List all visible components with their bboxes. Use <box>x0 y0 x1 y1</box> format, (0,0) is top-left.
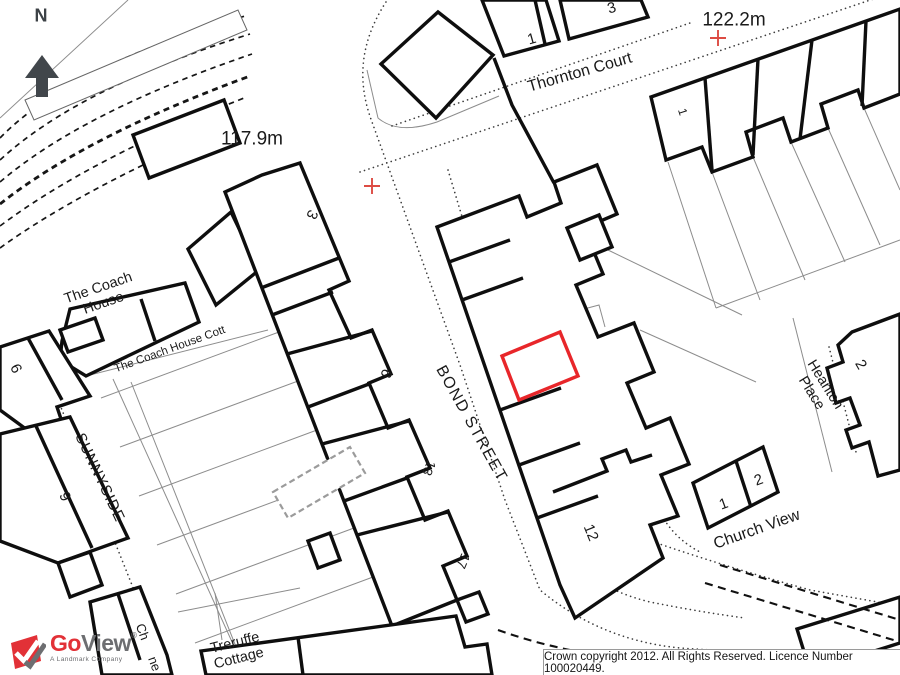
copyright-text: Crown copyright 2012. All Rights Reserve… <box>544 651 900 675</box>
copyright-strip: Crown copyright 2012. All Rights Reserve… <box>543 649 900 675</box>
logo-view: View <box>81 630 131 656</box>
spot-height-cross-2 <box>710 30 726 46</box>
goview-wordmark: GoView® <box>50 632 136 655</box>
north-label: N <box>35 6 48 27</box>
goview-logo: GoView® A Landmark Company <box>8 632 136 670</box>
map-viewport: N 117.9m 122.2m Thornton Court BOND STRE… <box>0 0 900 675</box>
spot-height-cross-1 <box>364 178 380 194</box>
goview-logo-mark <box>8 632 46 670</box>
spot-height-117: 117.9m <box>221 128 283 149</box>
spot-height-122: 122.2m <box>702 9 765 30</box>
logo-tagline: A Landmark Company <box>50 656 136 663</box>
buildings <box>0 0 900 675</box>
logo-go: Go <box>50 630 81 656</box>
map-canvas <box>0 0 900 675</box>
logo-registered-mark: ® <box>131 631 136 640</box>
